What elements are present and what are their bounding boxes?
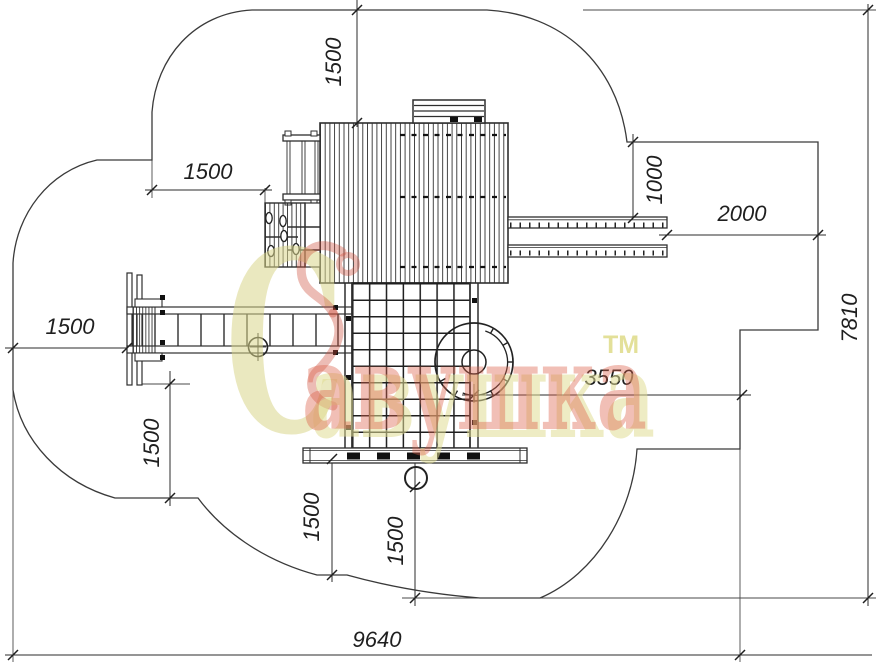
watermark-trademark: ТМ	[603, 331, 639, 359]
dim-label-overall-width: 9640	[353, 627, 403, 652]
dim-label-upper-left-width: 1500	[184, 159, 234, 184]
dim-label-right-step-height: 1000	[642, 155, 667, 205]
dim-label-top-height: 1500	[321, 37, 346, 87]
dim-label-overall-depth: 7810	[837, 293, 862, 343]
tower-roof	[320, 123, 508, 283]
dim-label-bottom-right-height: 1500	[383, 516, 408, 566]
playground-plan-drawing: 1500 1500 1000 2000 7810 1500 1500 3550 …	[0, 0, 880, 670]
entry-ladder	[283, 131, 320, 205]
dim-label-bottom-left-height: 1500	[299, 492, 324, 542]
dim-label-left-width: 1500	[46, 314, 96, 339]
watermark-word: авушка	[302, 317, 647, 458]
top-bench	[413, 100, 485, 123]
dim-label-right-step-width: 2000	[717, 201, 768, 226]
playground-plan-canvas: 1500 1500 1000 2000 7810 1500 1500 3550 …	[0, 0, 880, 670]
monkey-bars	[508, 217, 667, 257]
dim-label-left-lower-height: 1500	[139, 418, 164, 468]
